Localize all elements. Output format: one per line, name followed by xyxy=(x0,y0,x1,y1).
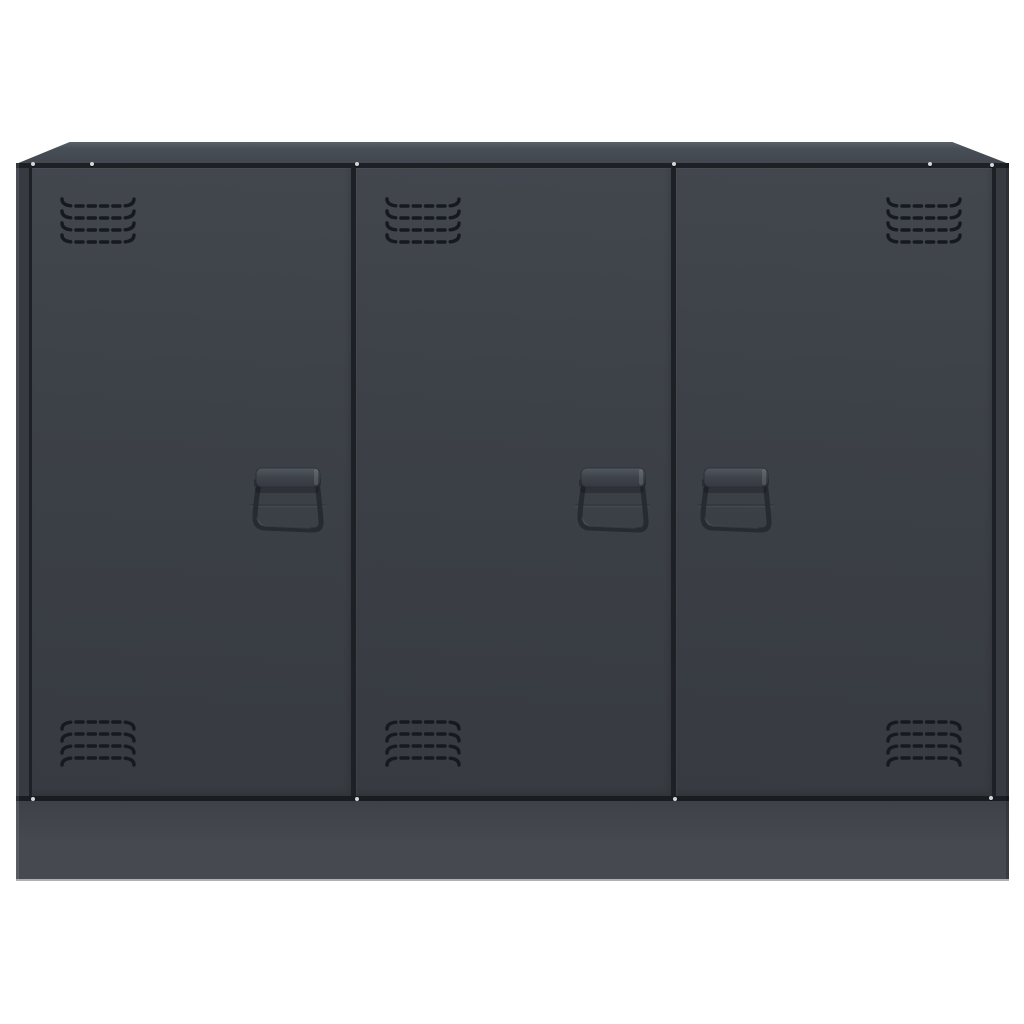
cabinet-plinth xyxy=(16,801,1009,881)
door-seam xyxy=(992,163,996,801)
screw-dot xyxy=(928,162,932,166)
cabinet-front xyxy=(16,163,1009,801)
screw-dot xyxy=(989,796,993,800)
vent-grille xyxy=(60,196,136,248)
screw-dot xyxy=(355,162,359,166)
cabinet-top-panel xyxy=(16,142,1009,164)
vent-grille xyxy=(886,716,962,768)
screw-dot xyxy=(31,162,35,166)
screw-dot xyxy=(90,162,94,166)
door-seam xyxy=(29,163,32,801)
screw-dot xyxy=(990,163,994,167)
top-seam xyxy=(16,163,1009,168)
vent-grille xyxy=(385,716,461,768)
right-edge-shadow xyxy=(1006,163,1009,801)
door-seam xyxy=(351,163,356,801)
product-photo xyxy=(0,0,1024,1024)
door-handle xyxy=(694,466,778,544)
left-edge-highlight xyxy=(16,163,19,801)
sideboard-cabinet xyxy=(16,142,1009,879)
door-seam xyxy=(671,163,676,801)
screw-dot xyxy=(672,162,676,166)
vent-grille xyxy=(60,716,136,768)
door-handle xyxy=(571,466,655,544)
vent-grille xyxy=(385,196,461,248)
vent-grille xyxy=(886,196,962,248)
door-handle xyxy=(246,466,330,544)
